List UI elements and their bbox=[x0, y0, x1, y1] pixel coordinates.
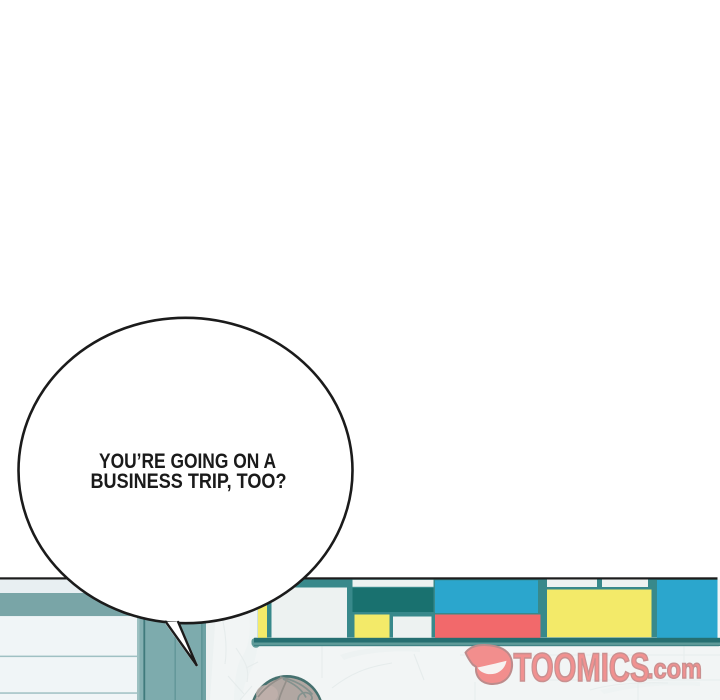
svg-text:TOOMICS: TOOMICS bbox=[514, 646, 650, 690]
svg-text:.com: .com bbox=[647, 653, 702, 684]
svg-text:BUSINESS TRIP, TOO?: BUSINESS TRIP, TOO? bbox=[91, 470, 287, 493]
